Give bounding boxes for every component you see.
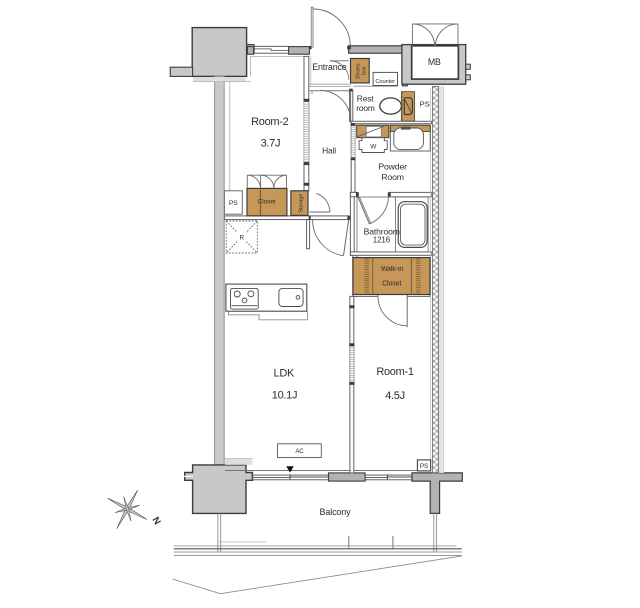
- svg-text:1216: 1216: [373, 236, 391, 245]
- svg-text:Closet: Closet: [382, 281, 401, 288]
- svg-text:Hall: Hall: [322, 146, 336, 156]
- svg-text:Entrance: Entrance: [312, 62, 347, 72]
- svg-text:10.1J: 10.1J: [272, 390, 297, 402]
- svg-text:PS: PS: [229, 200, 238, 207]
- svg-text:Room-1: Room-1: [376, 366, 414, 378]
- svg-text:R: R: [239, 234, 244, 241]
- svg-text:MB: MB: [428, 57, 441, 67]
- svg-text:PS: PS: [420, 463, 428, 470]
- svg-text:LDK: LDK: [274, 368, 295, 380]
- svg-text:Counter: Counter: [375, 79, 395, 85]
- svg-text:PS: PS: [420, 100, 430, 109]
- svg-text:AC: AC: [295, 449, 304, 455]
- svg-text:Balcony: Balcony: [320, 507, 352, 517]
- svg-text:Room: Room: [381, 172, 404, 182]
- svg-text:Room-2: Room-2: [251, 116, 289, 128]
- svg-text:Closet: Closet: [258, 198, 276, 205]
- svg-text:4.5J: 4.5J: [385, 390, 405, 402]
- svg-text:box: box: [361, 66, 367, 75]
- svg-text:3.7J: 3.7J: [261, 137, 281, 149]
- svg-text:Powder: Powder: [378, 162, 407, 172]
- svg-text:Storage: Storage: [299, 194, 305, 213]
- svg-text:Walk-in: Walk-in: [381, 266, 404, 273]
- svg-text:room: room: [356, 103, 375, 113]
